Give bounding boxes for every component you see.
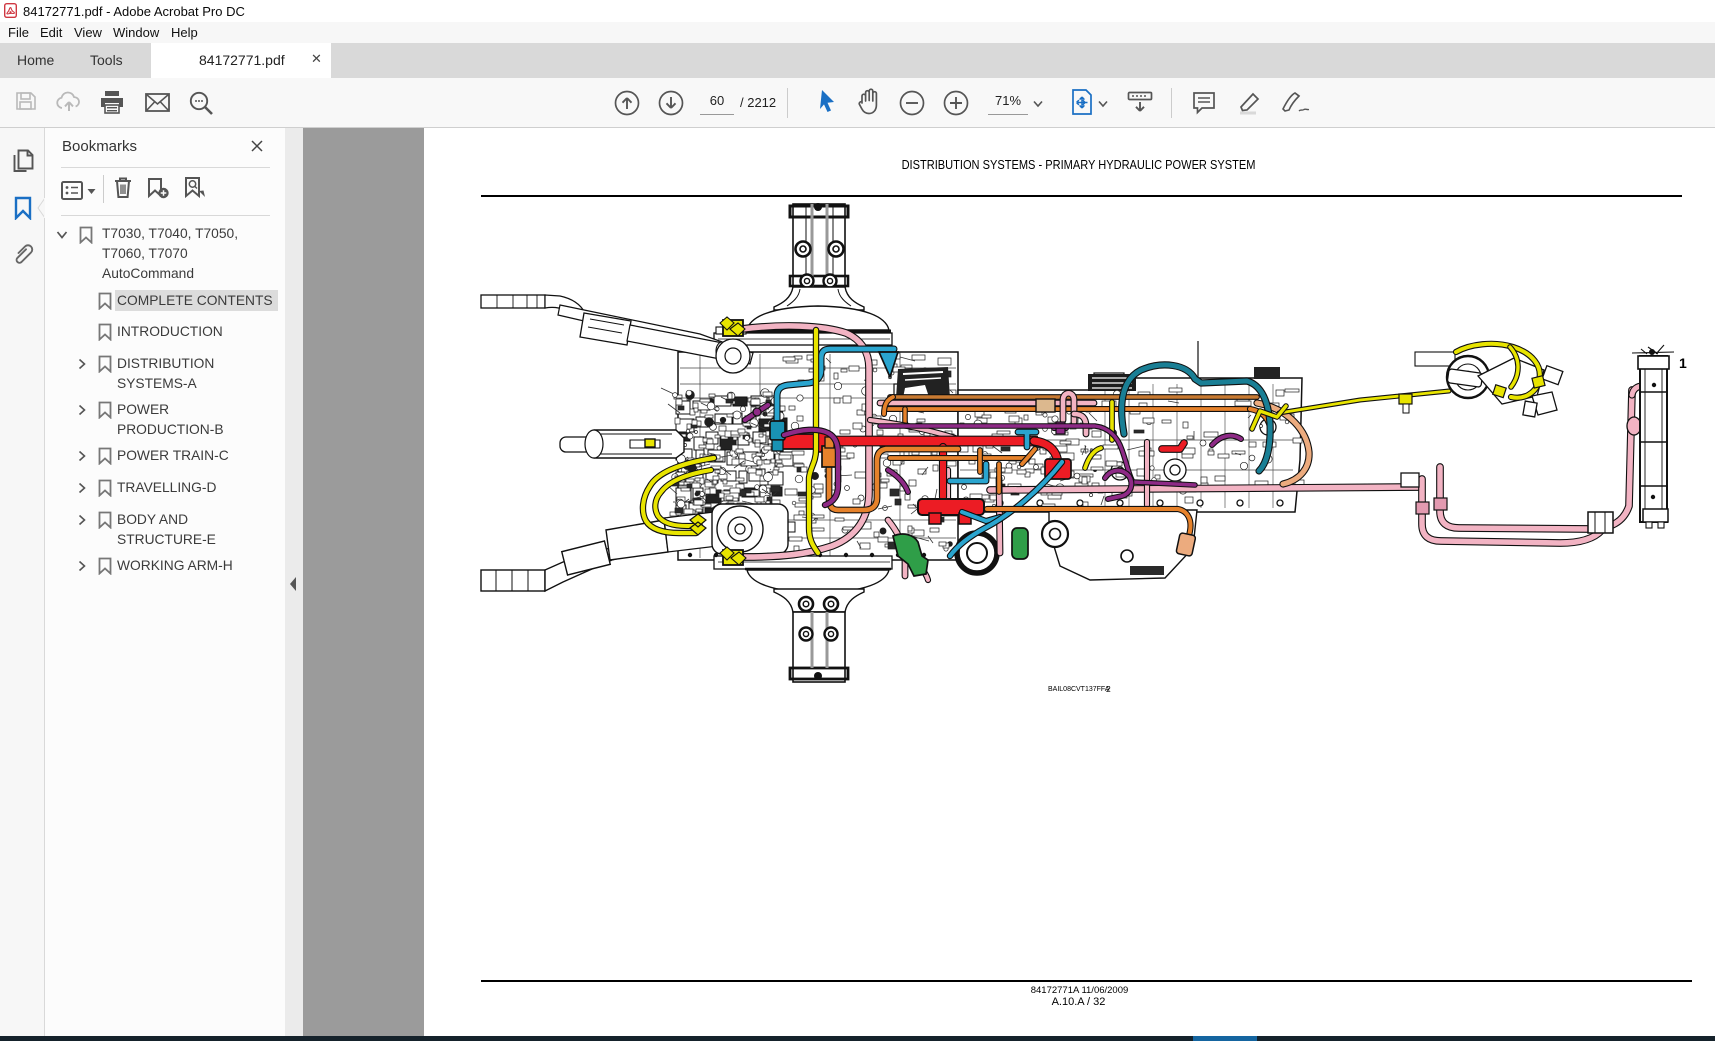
svg-text:1: 1 xyxy=(1679,355,1687,371)
